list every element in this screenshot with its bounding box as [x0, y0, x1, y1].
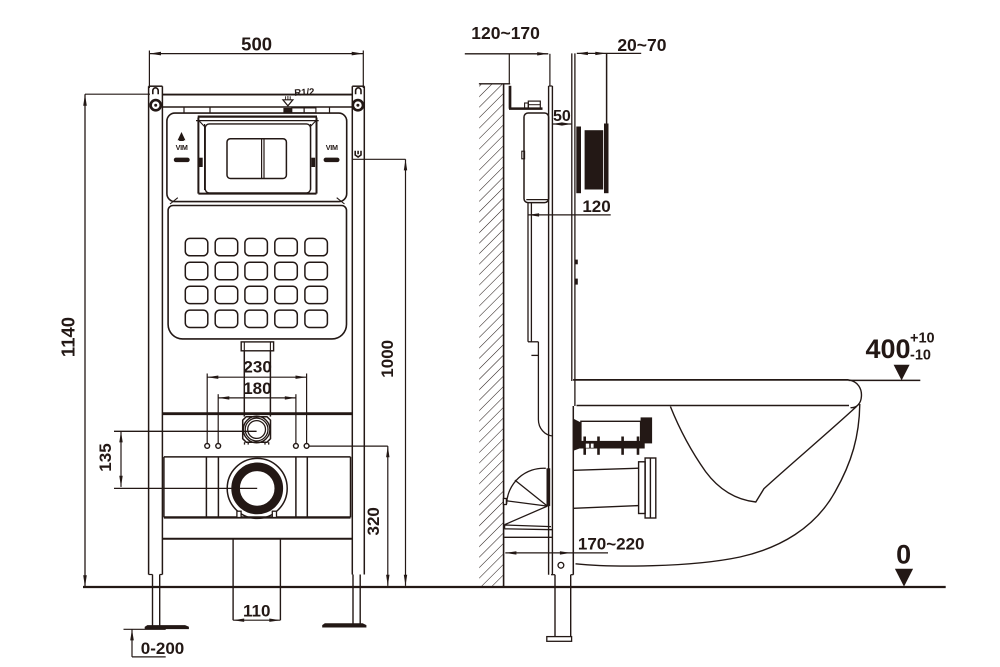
svg-text:VIM: VIM — [176, 143, 188, 152]
svg-text:320: 320 — [364, 507, 383, 535]
svg-text:R1/2: R1/2 — [294, 87, 315, 99]
svg-text:170~220: 170~220 — [578, 535, 645, 554]
svg-text:0-200: 0-200 — [141, 639, 184, 658]
svg-text:110: 110 — [243, 601, 270, 620]
svg-text:50: 50 — [553, 108, 571, 125]
svg-text:500: 500 — [241, 34, 272, 55]
svg-text:1140: 1140 — [58, 317, 79, 357]
svg-text:-10: -10 — [910, 348, 931, 364]
svg-text:1000: 1000 — [378, 340, 397, 378]
svg-text:180: 180 — [243, 379, 271, 398]
svg-text:230: 230 — [243, 358, 271, 377]
svg-text:120~170: 120~170 — [471, 23, 540, 43]
svg-text:0: 0 — [896, 539, 911, 569]
svg-text:400: 400 — [865, 334, 910, 364]
svg-text:VIM: VIM — [326, 143, 338, 152]
svg-text:20~70: 20~70 — [617, 35, 666, 55]
svg-text:120: 120 — [582, 197, 610, 216]
svg-text:135: 135 — [96, 443, 115, 471]
svg-text:+10: +10 — [910, 331, 935, 347]
